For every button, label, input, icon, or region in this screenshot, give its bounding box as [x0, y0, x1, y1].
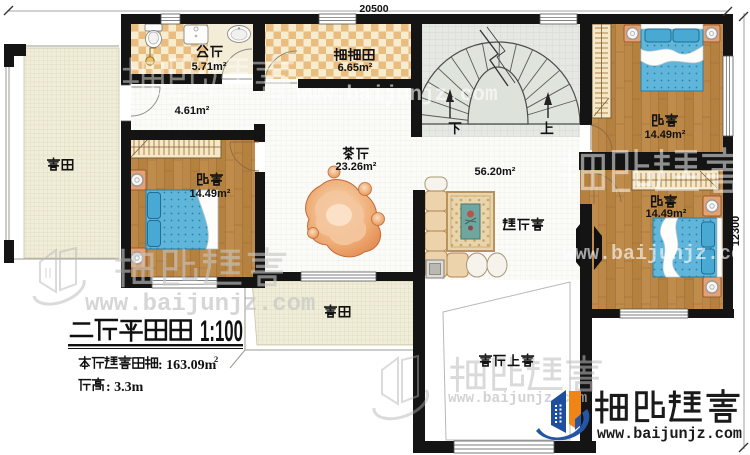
svg-text:23.26m²: 23.26m²: [336, 161, 377, 173]
svg-text:4.61m²: 4.61m²: [175, 105, 210, 117]
svg-text:14.49m²: 14.49m²: [645, 129, 686, 141]
svg-text:: 163.09m: : 163.09m: [158, 358, 217, 373]
svg-text:20500: 20500: [359, 3, 388, 15]
svg-text:2: 2: [214, 354, 218, 364]
svg-text:1:100: 1:100: [200, 315, 243, 348]
svg-text:6.65m²: 6.65m²: [338, 62, 373, 74]
svg-text:56.20m²: 56.20m²: [475, 166, 516, 178]
svg-text:14.49m²: 14.49m²: [646, 208, 687, 220]
svg-text:14.49m²: 14.49m²: [190, 188, 231, 200]
svg-text:: 3.3m: : 3.3m: [106, 380, 144, 395]
svg-text:5.71m²: 5.71m²: [192, 61, 227, 73]
svg-text:www.baijunjz.com: www.baijunjz.com: [448, 391, 588, 407]
svg-text:www.baijunjz.com: www.baijunjz.com: [597, 425, 742, 443]
svg-text:www.baijunjz.com: www.baijunjz.com: [296, 84, 498, 107]
svg-text:www.baijunjz.com: www.baijunjz.com: [85, 291, 315, 318]
svg-text:12300: 12300: [730, 216, 742, 247]
svg-text:www.baijunjz.com: www.baijunjz.com: [563, 243, 750, 266]
